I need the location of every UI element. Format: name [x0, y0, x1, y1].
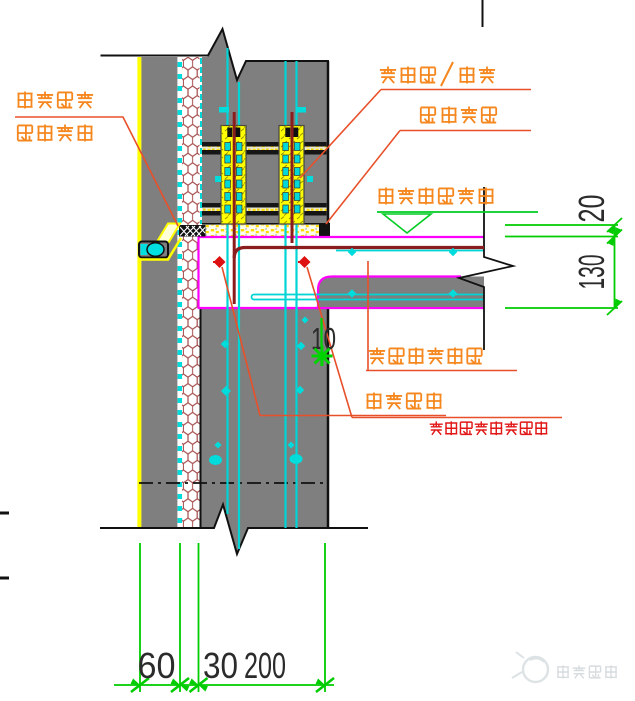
- svg-text:130: 130: [571, 255, 612, 290]
- svg-text:200: 200: [244, 645, 286, 686]
- svg-text:60: 60: [138, 645, 176, 686]
- svg-text:20: 20: [571, 195, 612, 223]
- svg-text:30: 30: [203, 645, 238, 686]
